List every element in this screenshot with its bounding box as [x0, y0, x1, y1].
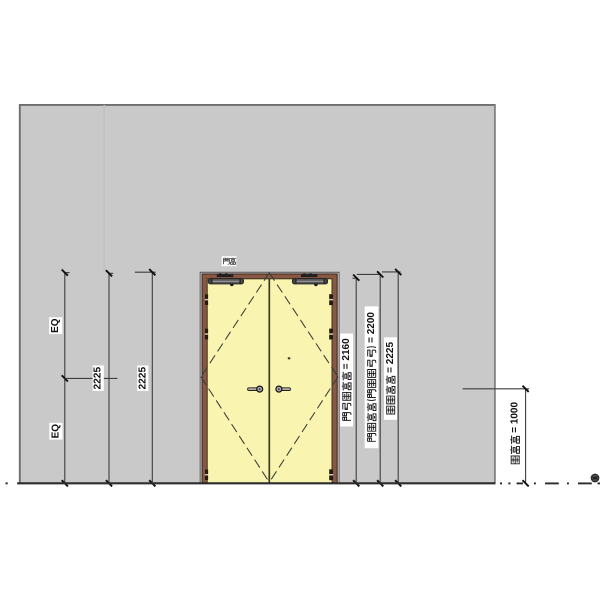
- svg-text:= 1000: = 1000: [510, 401, 521, 432]
- svg-text:= 2200: = 2200: [366, 312, 377, 343]
- svg-text:= 2225: = 2225: [385, 342, 396, 373]
- svg-text:2225: 2225: [93, 367, 104, 390]
- svg-text:2225: 2225: [137, 367, 148, 390]
- svg-text:= 2160: = 2160: [341, 338, 352, 369]
- svg-text:EQ: EQ: [50, 424, 61, 439]
- svg-text:EQ: EQ: [50, 318, 61, 333]
